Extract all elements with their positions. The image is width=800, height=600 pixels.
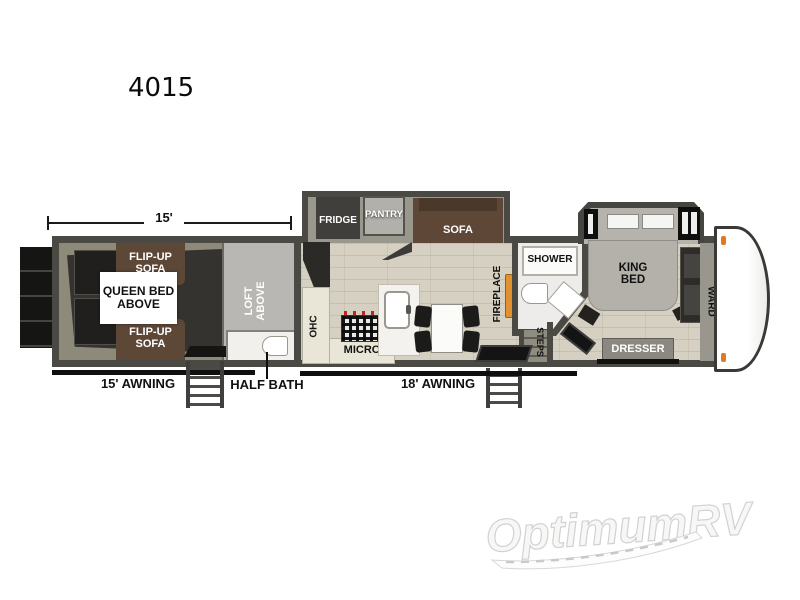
- stove-knobs: [341, 311, 379, 315]
- floorplan-canvas: 4015 15' FLIP-UP SOFA FLIP-UP SOFA QUEEN…: [0, 0, 800, 600]
- garage-awning-label: 15' AWNING: [78, 377, 198, 391]
- pantry-label: PANTRY: [361, 210, 407, 220]
- dinette-chair: [462, 330, 480, 353]
- dimension-tick-left: [47, 216, 49, 230]
- loft-above-label: LOFT ABOVE: [244, 268, 270, 334]
- bedroom-corner-window-pane: [682, 212, 688, 234]
- bedroom-corner-window-pane: [588, 214, 593, 234]
- garage-awning-bar: [52, 370, 255, 375]
- front-cap: [714, 226, 770, 372]
- marker-light: [721, 236, 726, 245]
- dealer-watermark: OptimumRV: [478, 490, 788, 582]
- watermark-graphic: OptimumRV: [478, 490, 788, 582]
- shower-label: SHOWER: [522, 255, 578, 266]
- entry-mat: [475, 345, 533, 362]
- sink-faucet: [406, 305, 411, 314]
- stove: [341, 315, 379, 342]
- dresser-label: DRESSER: [602, 344, 674, 356]
- bedroom-window: [642, 214, 674, 229]
- steps-label: STEPS: [532, 324, 544, 360]
- bedroom-window: [607, 214, 639, 229]
- half-bath-pointer-line: [266, 352, 268, 379]
- toilet: [521, 283, 548, 304]
- dinette-table: [431, 304, 463, 353]
- half-bath-label: HALF BATH: [217, 378, 317, 392]
- king-bed-label: KING BED: [588, 262, 678, 287]
- model-number: 4015: [128, 74, 194, 102]
- wardrobe-shelf: [684, 285, 700, 315]
- flip-up-sofa-bottom-label: FLIP-UP SOFA: [116, 327, 185, 351]
- dresser-base: [597, 359, 679, 364]
- dinette-chair: [414, 330, 432, 353]
- ohc-label: OHC: [310, 307, 323, 347]
- bedroom-corner-window-pane: [691, 212, 697, 234]
- marker-light: [721, 353, 726, 362]
- fireplace-label: FIREPLACE: [493, 264, 505, 324]
- main-awning-label: 18' AWNING: [378, 377, 498, 391]
- fireplace: [505, 274, 513, 318]
- dinette-chair: [462, 305, 480, 328]
- fridge-label: FRIDGE: [314, 216, 362, 227]
- flip-up-sofa-top-label: FLIP-UP SOFA: [116, 252, 185, 276]
- dimension-tick-right: [290, 216, 292, 230]
- queen-bed-above-label: QUEEN BED ABOVE: [100, 285, 177, 311]
- living-sofa-back: [419, 198, 497, 211]
- wardrobe-shelf: [684, 254, 700, 278]
- living-sofa-label: SOFA: [413, 225, 503, 237]
- dimension-label: 15': [144, 211, 184, 225]
- dinette-chair: [414, 305, 432, 328]
- steps-wall-right: [547, 322, 553, 362]
